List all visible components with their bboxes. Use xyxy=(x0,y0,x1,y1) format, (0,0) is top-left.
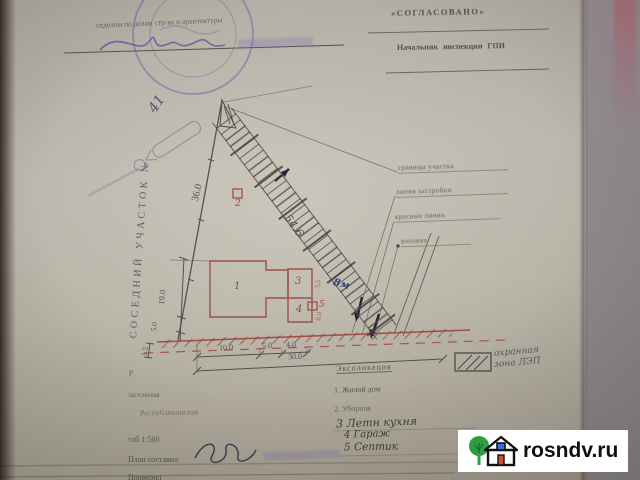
dim-front-3: 4.0 xyxy=(286,340,296,349)
window-icon xyxy=(497,443,505,450)
form-line-2: заселения xyxy=(128,390,160,399)
form-composed-label: План составил xyxy=(128,455,178,464)
page-shadow-left xyxy=(0,0,16,480)
pencil-smear xyxy=(88,168,140,196)
page-edges xyxy=(0,462,460,477)
page-fold xyxy=(579,0,588,480)
dim-front-total: 30.0 xyxy=(288,352,302,361)
legend-hatch-box xyxy=(455,353,491,371)
building-3-label: 3 xyxy=(295,276,301,287)
explication-title: Экспликация xyxy=(336,362,392,374)
dim-front-2: 5.0 xyxy=(262,341,272,350)
watermark-badge: rosndv.ru xyxy=(458,430,628,472)
dim-gap-1: 3,5 xyxy=(313,279,322,289)
explication-item-1: 1. Жилой дом xyxy=(334,384,381,394)
building-2-outline xyxy=(233,189,242,198)
dim-side-small: 5.0 xyxy=(149,322,159,332)
watermark-site: rosndv.ru xyxy=(523,439,618,463)
book-edge-band xyxy=(614,0,636,130)
dim-depth: 19.0 xyxy=(156,289,168,305)
explication-item-2: 2. Уборная xyxy=(334,404,371,414)
form-scale: таб 1:500 xyxy=(128,435,159,444)
building-4-label: 4 xyxy=(296,304,302,315)
building-2-label: 2 xyxy=(235,199,241,209)
building-1-outline xyxy=(210,261,288,317)
signature-bottom xyxy=(195,444,256,462)
stamp-icon xyxy=(64,0,344,94)
building-5-label: 5 xyxy=(319,300,325,310)
explication-item-4: 4 Гараж xyxy=(344,428,390,441)
approval-lines xyxy=(368,29,549,73)
dim-gap-2: 6,0 xyxy=(314,311,323,321)
dim-front-1: 10.0 xyxy=(219,343,233,352)
building-1-label: 1 xyxy=(234,281,240,292)
house-icon xyxy=(485,437,517,465)
corridor-tick xyxy=(230,134,259,156)
form-line-1: р xyxy=(129,367,133,376)
corridor-tick xyxy=(351,293,380,315)
approval-subtitle: Начальник инспекции ГПИ xyxy=(397,41,505,52)
explication-item-5: 5 Септик xyxy=(344,441,398,454)
document-photo: отделом по делам стр-ва и архитектуры «С… xyxy=(0,0,640,480)
form-street: Республиканская xyxy=(140,407,198,417)
door-icon xyxy=(498,455,504,465)
rosndv-logo-icon xyxy=(466,433,518,469)
corridor-tick xyxy=(302,229,331,251)
form-checked-label: Проверил xyxy=(128,473,161,480)
corridor-tick xyxy=(254,166,283,188)
approval-title: «СОГЛАСОВАНО» xyxy=(391,6,485,18)
signature-top xyxy=(100,37,225,50)
street-corner-lines xyxy=(394,233,439,336)
